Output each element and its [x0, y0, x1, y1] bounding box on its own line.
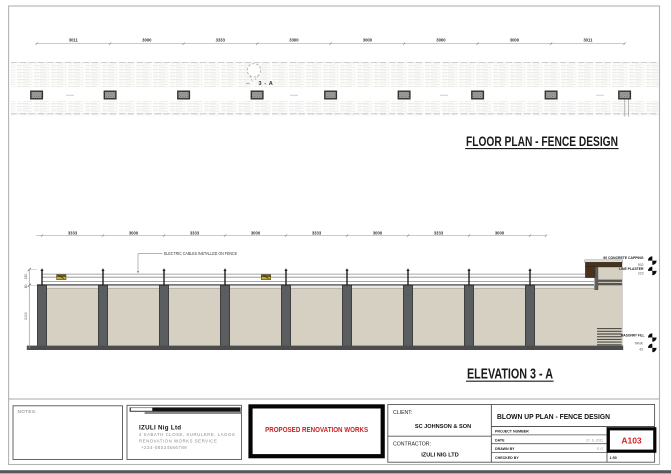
- svg-text:CHECKED BY: CHECKED BY: [495, 456, 519, 460]
- svg-text:A103: A103: [621, 435, 642, 445]
- svg-text:80: 80: [24, 284, 28, 288]
- svg-text:PROJECT NUMBER: PROJECT NUMBER: [495, 429, 529, 433]
- svg-text:3000: 3000: [436, 38, 446, 43]
- svg-text:223: 223: [638, 271, 644, 275]
- svg-text:DRAWN BY: DRAWN BY: [495, 447, 515, 451]
- svg-text:3333: 3333: [68, 230, 78, 235]
- svg-text:DATE: DATE: [495, 438, 505, 442]
- svg-text:3333: 3333: [312, 230, 322, 235]
- svg-text:3300: 3300: [289, 38, 299, 43]
- svg-text:SC JOHNSON & SON: SC JOHNSON & SON: [415, 424, 471, 430]
- svg-text:ELECTRIC CABLES INSTALLED ON F: ELECTRIC CABLES INSTALLED ON FENCE: [164, 251, 237, 256]
- svg-text:IZULI Nig Ltd: IZULI Nig Ltd: [139, 425, 181, 432]
- svg-text:RENOVATION WORKS SERVICE: RENOVATION WORKS SERVICE: [139, 439, 217, 444]
- svg-text:3000: 3000: [129, 230, 139, 235]
- svg-text:3000: 3000: [251, 230, 261, 235]
- svg-text:ELEVATION 3 - A: ELEVATION 3 - A: [467, 367, 553, 383]
- svg-text:NOTES:: NOTES:: [18, 409, 38, 414]
- svg-text:27. 6. 2011: 27. 6. 2011: [586, 438, 603, 442]
- svg-text:IZULI NIG LTD: IZULI NIG LTD: [421, 453, 459, 459]
- svg-text:BLOWN UP PLAN - FENCE DESIGN: BLOWN UP PLAN - FENCE DESIGN: [497, 412, 610, 421]
- svg-text:E.O: E.O: [597, 447, 603, 451]
- svg-text:FLOOR PLAN - FENCE DESIGN: FLOOR PLAN - FENCE DESIGN: [466, 134, 618, 149]
- svg-text:3000: 3000: [142, 38, 152, 43]
- svg-text:CLIENT:: CLIENT:: [393, 410, 412, 416]
- svg-text:3011: 3011: [69, 38, 79, 43]
- svg-text:3011: 3011: [583, 38, 593, 43]
- svg-text:1:50: 1:50: [610, 456, 617, 460]
- svg-text:3000: 3000: [510, 38, 520, 43]
- svg-text:2100: 2100: [24, 312, 28, 320]
- svg-text:60 CONCRETE CAPPING: 60 CONCRETE CAPPING: [603, 256, 643, 260]
- svg-text:43: 43: [639, 348, 643, 352]
- svg-text:+234-08034566789: +234-08034566789: [141, 445, 187, 450]
- svg-text:3000: 3000: [495, 230, 505, 235]
- svg-text:3333: 3333: [216, 38, 226, 43]
- svg-text:3333: 3333: [434, 230, 444, 235]
- svg-text:3000: 3000: [373, 230, 383, 235]
- svg-text:MASONRY FILL: MASONRY FILL: [621, 333, 645, 337]
- svg-text:PROPOSED RENOVATION WORKS: PROPOSED RENOVATION WORKS: [265, 425, 368, 434]
- svg-text:150: 150: [24, 274, 28, 280]
- svg-text:3000: 3000: [363, 38, 373, 43]
- svg-text:4 SABATH CLOSE, SURULERE, LAGO: 4 SABATH CLOSE, SURULERE, LAGOS: [139, 432, 235, 437]
- svg-text:TANK: TANK: [634, 341, 644, 345]
- svg-text:3 - A: 3 - A: [259, 81, 274, 87]
- svg-text:CONTRACTOR:: CONTRACTOR:: [393, 441, 431, 447]
- svg-text:3333: 3333: [190, 230, 200, 235]
